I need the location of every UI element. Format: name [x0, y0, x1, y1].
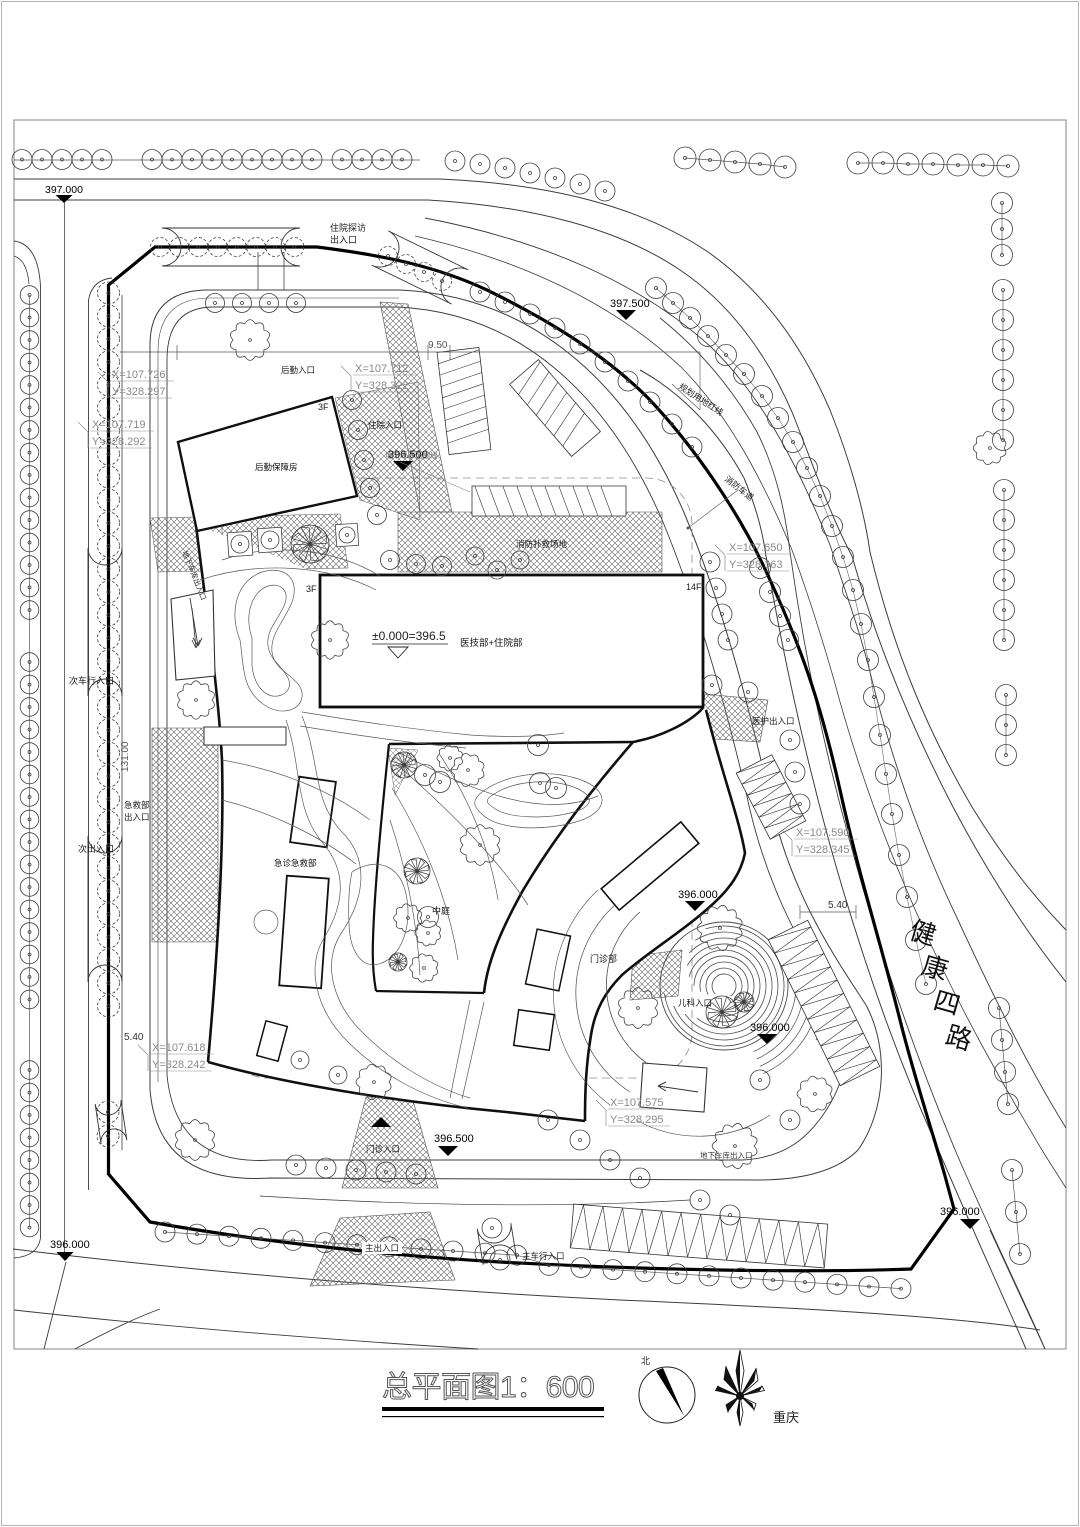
svg-text:±0.000=396.5: ±0.000=396.5 — [372, 629, 446, 643]
svg-text:次车行入口: 次车行入口 — [69, 675, 114, 686]
svg-text:地下车库出入口: 地下车库出入口 — [700, 1150, 753, 1160]
svg-text:急救部: 急救部 — [124, 800, 150, 810]
svg-text:住院探访: 住院探访 — [330, 222, 366, 233]
svg-text:3F: 3F — [306, 584, 317, 594]
svg-text:131.00: 131.00 — [120, 741, 131, 772]
svg-text:医技部+住院部: 医技部+住院部 — [460, 637, 523, 649]
svg-text:住院入口: 住院入口 — [368, 420, 402, 430]
svg-text:Y=328.295: Y=328.295 — [610, 1114, 664, 1126]
svg-text:3F: 3F — [318, 402, 329, 412]
svg-text:医护出入口: 医护出入口 — [752, 716, 795, 726]
svg-text:出入口: 出入口 — [124, 812, 150, 822]
svg-text:出入口: 出入口 — [330, 234, 357, 245]
svg-text:地下车库范围线: 地下车库范围线 — [385, 450, 438, 460]
svg-text:396.000: 396.000 — [750, 1022, 790, 1034]
svg-text:Y=328.242: Y=328.242 — [152, 1059, 206, 1071]
svg-text:Y=328.345: Y=328.345 — [796, 844, 850, 856]
svg-text:9.50: 9.50 — [428, 340, 448, 351]
svg-text:儿科入口: 儿科入口 — [678, 998, 712, 1008]
svg-text:X=107.719: X=107.719 — [92, 419, 146, 431]
svg-text:中庭: 中庭 — [432, 905, 450, 916]
svg-text:X=107.618: X=107.618 — [152, 1042, 206, 1054]
svg-text:Y=328.363: Y=328.363 — [729, 559, 783, 571]
svg-text:Y=328.292: Y=328.292 — [92, 436, 146, 448]
svg-text:急诊急救部: 急诊急救部 — [274, 858, 317, 868]
svg-text:后勤保障房: 后勤保障房 — [255, 462, 298, 472]
svg-text:397.500: 397.500 — [610, 298, 650, 310]
svg-text:X=107.726: X=107.726 — [112, 369, 166, 381]
svg-text:主出入口: 主出入口 — [365, 1243, 399, 1253]
svg-text:北: 北 — [641, 1356, 650, 1366]
svg-text:后勤入口: 后勤入口 — [281, 365, 315, 375]
svg-text:14F: 14F — [686, 582, 702, 592]
svg-text:X=107.575: X=107.575 — [610, 1097, 664, 1109]
svg-text:X=107.712: X=107.712 — [355, 363, 409, 375]
svg-text:主车行入口: 主车行入口 — [522, 1251, 565, 1261]
svg-text:396.500: 396.500 — [434, 1133, 474, 1145]
svg-text:重庆: 重庆 — [773, 1410, 799, 1425]
svg-text:X=107.650: X=107.650 — [729, 542, 783, 554]
svg-text:消防扑救场地: 消防扑救场地 — [516, 539, 568, 549]
svg-text:396.000: 396.000 — [678, 889, 718, 901]
svg-text:396.000: 396.000 — [50, 1239, 90, 1251]
svg-text:门诊入口: 门诊入口 — [366, 1144, 400, 1154]
svg-text:5.40: 5.40 — [828, 900, 848, 911]
svg-text:396.000: 396.000 — [940, 1206, 980, 1218]
svg-text:X=107.590: X=107.590 — [796, 827, 850, 839]
svg-text:次出入口: 次出入口 — [78, 843, 114, 854]
svg-text:Y=328.297: Y=328.297 — [112, 386, 166, 398]
svg-text:397.000: 397.000 — [45, 184, 83, 196]
svg-text:Y=328.322: Y=328.322 — [355, 380, 409, 392]
svg-text:总平面图1：600: 总平面图1：600 — [382, 1371, 594, 1404]
svg-text:5.40: 5.40 — [124, 1032, 144, 1043]
svg-text:门诊部: 门诊部 — [590, 953, 617, 964]
